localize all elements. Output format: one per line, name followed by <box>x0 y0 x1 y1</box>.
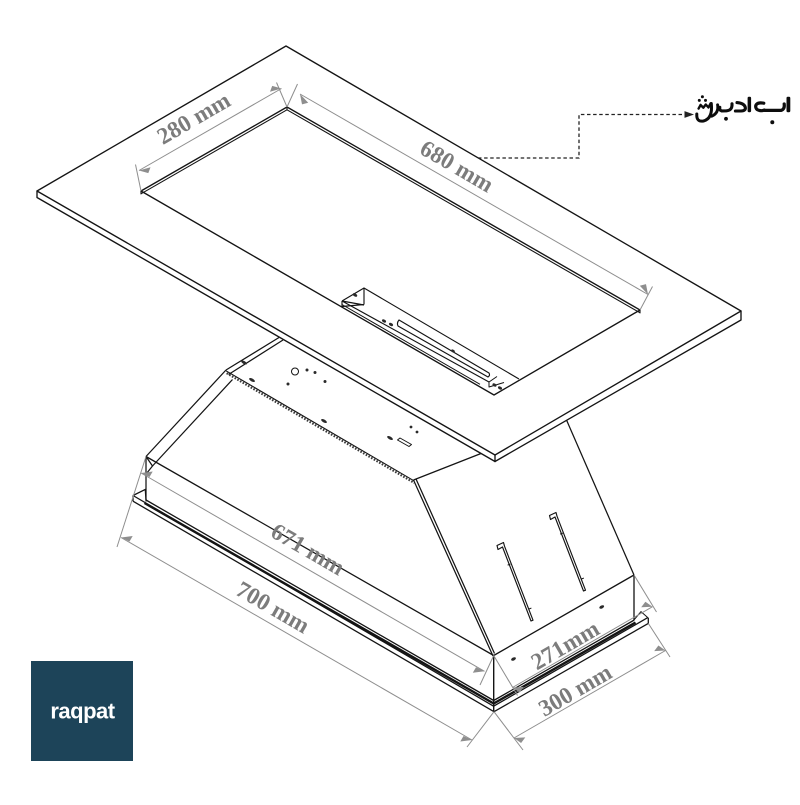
svg-text:raqpat: raqpat <box>50 699 115 724</box>
